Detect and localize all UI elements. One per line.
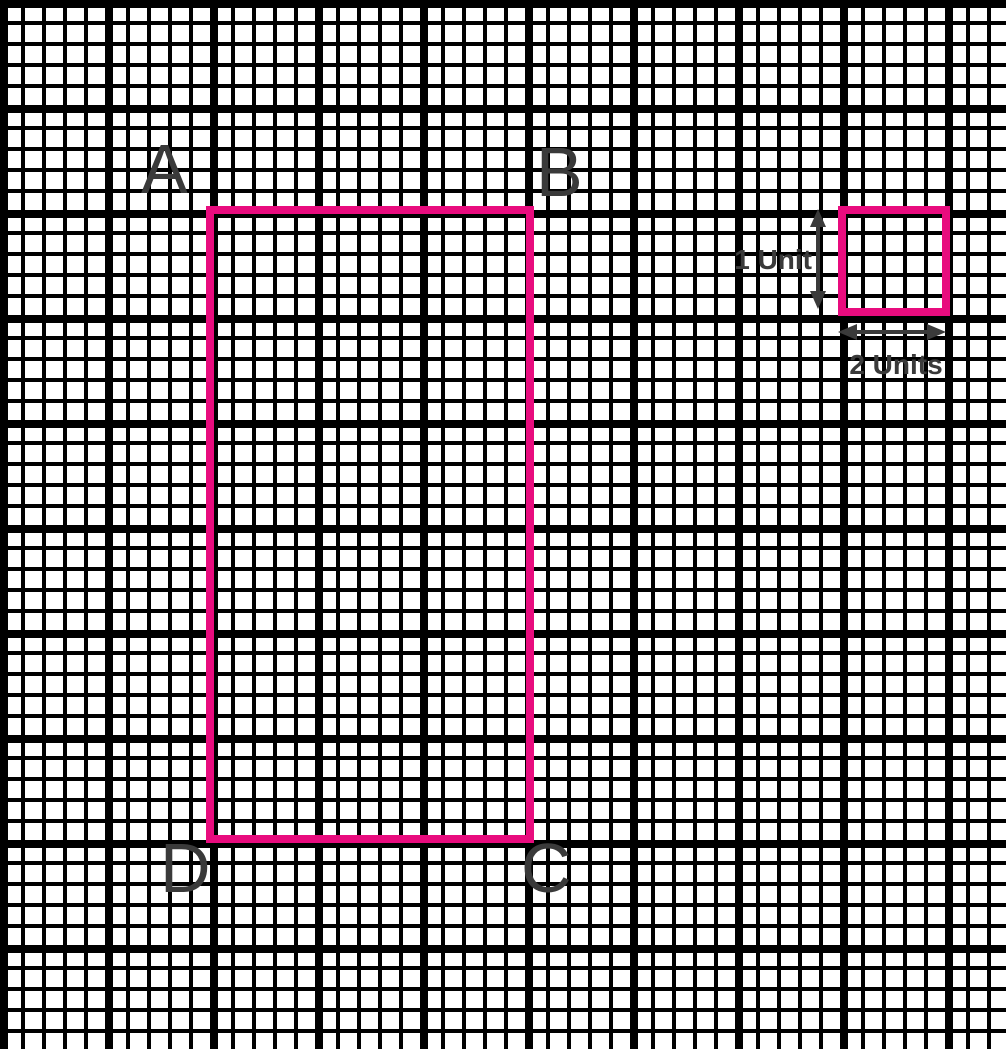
corner-label-c: C (521, 833, 572, 903)
unit-reference-rectangle (838, 206, 950, 316)
corner-label-b: B (536, 137, 583, 207)
vertical-scale-label: 1 Unit (700, 246, 812, 274)
rectangle-abcd (206, 206, 534, 843)
corner-label-d: D (160, 833, 211, 903)
horizontal-double-arrow-icon (838, 324, 946, 340)
grid-paper-background: A B C D 1 Unit 2 Units (0, 0, 1006, 1049)
horizontal-scale-label: 2 Units (842, 351, 950, 379)
corner-label-a: A (141, 134, 188, 204)
vertical-double-arrow-icon (810, 209, 826, 309)
